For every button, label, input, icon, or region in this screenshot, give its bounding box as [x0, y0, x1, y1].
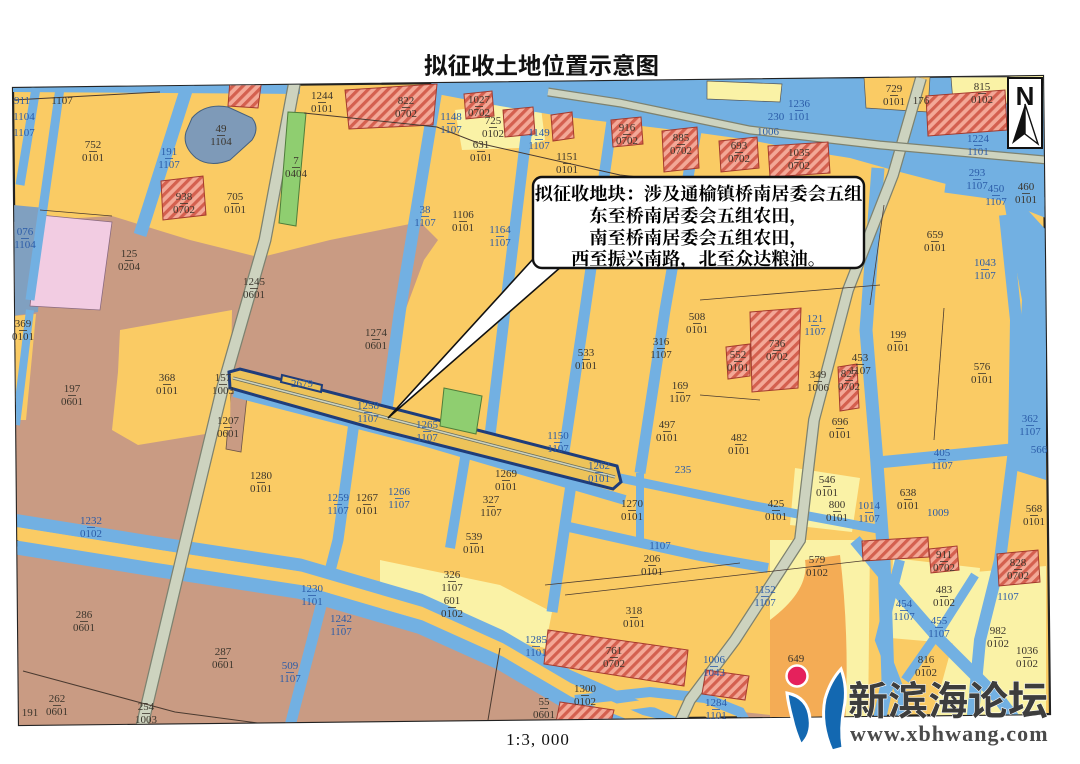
svg-text:1107: 1107: [849, 365, 871, 377]
svg-text:199: 199: [890, 329, 907, 341]
svg-text:1107: 1107: [547, 443, 569, 455]
svg-text:729: 729: [886, 83, 903, 95]
svg-text:0101: 0101: [728, 445, 750, 457]
svg-text:0601: 0601: [61, 396, 83, 408]
svg-text:1150: 1150: [547, 430, 569, 442]
svg-text:455: 455: [931, 615, 948, 627]
svg-text:176: 176: [913, 95, 930, 107]
svg-text:0702: 0702: [788, 160, 810, 172]
svg-text:1106: 1106: [452, 209, 474, 221]
svg-text:0102: 0102: [971, 94, 993, 106]
svg-text:0101: 0101: [829, 429, 851, 441]
svg-text:125: 125: [121, 248, 138, 260]
svg-text:1107: 1107: [440, 124, 462, 136]
svg-text:761: 761: [606, 645, 623, 657]
svg-text:0101: 0101: [495, 481, 517, 493]
svg-text:1107: 1107: [416, 432, 438, 444]
svg-text:601: 601: [444, 595, 461, 607]
svg-text:0702: 0702: [728, 153, 750, 165]
svg-text:0101: 0101: [452, 222, 474, 234]
svg-text:287: 287: [215, 646, 232, 658]
svg-text:631: 631: [473, 139, 490, 151]
svg-text:1107: 1107: [414, 217, 436, 229]
svg-text:0101: 0101: [463, 544, 485, 556]
svg-text:1036: 1036: [1016, 645, 1039, 657]
svg-text:1262: 1262: [588, 460, 610, 472]
svg-text:49: 49: [216, 123, 228, 135]
svg-text:1266: 1266: [388, 486, 411, 498]
svg-text:0101: 0101: [621, 511, 643, 523]
svg-text:483: 483: [936, 584, 953, 596]
svg-text:0601: 0601: [217, 428, 239, 440]
svg-text:7: 7: [293, 155, 299, 167]
svg-text:579: 579: [809, 554, 826, 566]
svg-text:1265: 1265: [416, 419, 439, 431]
svg-text:0101: 0101: [727, 362, 749, 374]
svg-text:38: 38: [420, 204, 432, 216]
svg-text:1107: 1107: [51, 95, 73, 107]
svg-text:362: 362: [1022, 413, 1039, 425]
svg-text:885: 885: [673, 132, 690, 144]
svg-text:1107: 1107: [669, 393, 691, 405]
svg-text:1107: 1107: [279, 673, 301, 685]
svg-text:0101: 0101: [156, 385, 178, 397]
svg-text:1107: 1107: [441, 582, 463, 594]
svg-text:1270: 1270: [621, 498, 644, 510]
svg-text:0101: 0101: [656, 432, 678, 444]
svg-text:1107: 1107: [158, 159, 180, 171]
svg-text:1107: 1107: [997, 591, 1019, 603]
svg-text:235: 235: [675, 464, 692, 476]
svg-text:316: 316: [653, 336, 670, 348]
svg-text:425: 425: [768, 498, 785, 510]
svg-text:1259: 1259: [327, 492, 350, 504]
svg-text:0101: 0101: [641, 566, 663, 578]
svg-text:736: 736: [769, 338, 786, 350]
svg-text:1267: 1267: [356, 492, 379, 504]
svg-text:1107: 1107: [804, 326, 826, 338]
svg-text:0101: 0101: [1023, 516, 1045, 528]
svg-text:0101: 0101: [623, 618, 645, 630]
svg-text:916: 916: [619, 122, 636, 134]
svg-text:911: 911: [14, 95, 30, 107]
svg-text:169: 169: [672, 380, 689, 392]
svg-text:1:3, 000: 1:3, 000: [506, 730, 570, 749]
svg-text:1101: 1101: [301, 596, 323, 608]
svg-text:1164: 1164: [489, 224, 511, 236]
svg-text:1107: 1107: [330, 626, 352, 638]
svg-text:1014: 1014: [858, 500, 881, 512]
svg-text:1006: 1006: [757, 126, 780, 138]
svg-text:0102: 0102: [574, 696, 596, 708]
svg-text:0101: 0101: [686, 324, 708, 336]
svg-text:0702: 0702: [1007, 570, 1029, 582]
svg-text:982: 982: [990, 625, 1007, 637]
svg-text:368: 368: [159, 372, 176, 384]
svg-text:1280: 1280: [250, 470, 273, 482]
svg-text:815: 815: [974, 81, 991, 93]
svg-text:1230: 1230: [301, 583, 324, 595]
svg-text:1258: 1258: [357, 400, 380, 412]
svg-text:0102: 0102: [441, 608, 463, 620]
svg-text:0702: 0702: [933, 562, 955, 574]
svg-text:568: 568: [1026, 503, 1043, 515]
svg-text:0101: 0101: [816, 487, 838, 499]
svg-text:293: 293: [969, 167, 986, 179]
svg-text:828: 828: [1010, 557, 1027, 569]
svg-text:254: 254: [138, 701, 155, 713]
svg-text:0702: 0702: [603, 658, 625, 670]
svg-text:725: 725: [485, 115, 502, 127]
svg-text:705: 705: [227, 191, 244, 203]
svg-text:1107: 1107: [489, 237, 511, 249]
svg-text:0404: 0404: [285, 168, 308, 180]
svg-text:1043: 1043: [703, 667, 726, 679]
svg-text:1043: 1043: [974, 257, 997, 269]
svg-text:0601: 0601: [212, 659, 234, 671]
svg-text:1107: 1107: [13, 127, 35, 139]
svg-text:1107: 1107: [357, 413, 379, 425]
svg-text:497: 497: [659, 419, 676, 431]
svg-text:0101: 0101: [765, 511, 787, 523]
svg-text:482: 482: [731, 432, 748, 444]
svg-text:539: 539: [466, 531, 483, 543]
svg-text:1104: 1104: [13, 111, 35, 123]
svg-text:0102: 0102: [1016, 658, 1038, 670]
svg-text:1006: 1006: [703, 654, 726, 666]
svg-text:816: 816: [918, 654, 935, 666]
svg-text:0101: 0101: [588, 473, 610, 485]
svg-text:1284: 1284: [705, 697, 728, 709]
svg-text:546: 546: [819, 474, 836, 486]
svg-text:157: 157: [215, 372, 232, 384]
svg-text:0702: 0702: [670, 145, 692, 157]
svg-text:1232: 1232: [80, 515, 102, 527]
svg-text:0101: 0101: [575, 360, 597, 372]
svg-text:1207: 1207: [217, 415, 240, 427]
svg-text:0601: 0601: [46, 706, 68, 718]
svg-text:0101: 0101: [12, 331, 34, 343]
svg-text:0702: 0702: [395, 108, 417, 120]
svg-text:0101: 0101: [826, 512, 848, 524]
svg-text:1152: 1152: [754, 584, 776, 596]
svg-text:405: 405: [934, 447, 951, 459]
svg-text:1269: 1269: [495, 468, 518, 480]
svg-text:0601: 0601: [533, 709, 555, 721]
svg-text:0101: 0101: [82, 152, 104, 164]
svg-text:0204: 0204: [118, 261, 141, 273]
svg-text:1300: 1300: [574, 683, 597, 695]
svg-text:191: 191: [161, 146, 178, 158]
svg-text:349: 349: [810, 369, 827, 381]
svg-text:454: 454: [896, 598, 913, 610]
svg-text:0102: 0102: [915, 667, 937, 679]
svg-text:1242: 1242: [330, 613, 352, 625]
svg-text:649: 649: [788, 653, 805, 665]
svg-text:1107: 1107: [928, 628, 950, 640]
svg-text:800: 800: [829, 499, 846, 511]
svg-text:638: 638: [900, 487, 917, 499]
svg-text:326: 326: [444, 569, 461, 581]
svg-text:0101: 0101: [897, 500, 919, 512]
svg-text:1107: 1107: [754, 597, 776, 609]
svg-text:1107: 1107: [528, 140, 550, 152]
svg-text:318: 318: [626, 605, 643, 617]
svg-text:752: 752: [85, 139, 102, 151]
svg-text:0601: 0601: [73, 622, 95, 634]
svg-text:576: 576: [974, 361, 991, 373]
svg-text:0702: 0702: [766, 351, 788, 363]
svg-text:1107: 1107: [1019, 426, 1041, 438]
svg-text:0601: 0601: [243, 289, 265, 301]
svg-text:1149: 1149: [528, 127, 550, 139]
svg-text:55: 55: [539, 696, 551, 708]
svg-text:0101: 0101: [556, 164, 578, 176]
svg-text:206: 206: [644, 553, 661, 565]
svg-text:121: 121: [807, 313, 824, 325]
svg-text:1245: 1245: [243, 276, 266, 288]
svg-text:0101: 0101: [883, 96, 905, 108]
svg-text:1101: 1101: [967, 146, 989, 158]
svg-text:1107: 1107: [966, 180, 988, 192]
svg-text:0102: 0102: [80, 528, 102, 540]
svg-text:1101: 1101: [788, 111, 810, 123]
svg-text:0101: 0101: [224, 204, 246, 216]
svg-text:369: 369: [15, 318, 32, 330]
svg-text:1107: 1107: [858, 513, 880, 525]
svg-text:508: 508: [689, 311, 706, 323]
svg-text:822: 822: [398, 95, 415, 107]
svg-text:0101: 0101: [470, 152, 492, 164]
svg-text:1107: 1107: [985, 196, 1007, 208]
svg-text:286: 286: [76, 609, 93, 621]
svg-text:696: 696: [832, 416, 849, 428]
svg-text:0702: 0702: [173, 204, 195, 216]
svg-text:1285: 1285: [525, 634, 548, 646]
svg-text:327: 327: [483, 494, 500, 506]
svg-text:1107: 1107: [931, 460, 953, 472]
svg-text:2679: 2679: [291, 378, 314, 390]
svg-text:1148: 1148: [440, 111, 462, 123]
svg-text:1236: 1236: [788, 98, 811, 110]
svg-text:1027: 1027: [468, 94, 491, 106]
svg-text:0102: 0102: [933, 597, 955, 609]
svg-text:1107: 1107: [388, 499, 410, 511]
svg-text:566: 566: [1031, 444, 1048, 456]
svg-text:1003: 1003: [212, 385, 235, 397]
svg-text:0101: 0101: [356, 505, 378, 517]
svg-text:1151: 1151: [556, 151, 578, 163]
svg-text:0101: 0101: [1015, 194, 1037, 206]
svg-text:0101: 0101: [887, 342, 909, 354]
svg-text:460: 460: [1018, 181, 1035, 193]
svg-text:0702: 0702: [838, 381, 860, 393]
svg-text:0101: 0101: [971, 374, 993, 386]
svg-text:1035: 1035: [788, 147, 811, 159]
svg-text:1224: 1224: [967, 133, 990, 145]
svg-text:1101: 1101: [705, 710, 727, 722]
svg-text:1107: 1107: [327, 505, 349, 517]
svg-text:0601: 0601: [365, 340, 387, 352]
svg-text:1101: 1101: [525, 647, 547, 659]
svg-text:693: 693: [731, 140, 748, 152]
svg-text:www.xbhwang.com: www.xbhwang.com: [850, 721, 1049, 746]
svg-text:1006: 1006: [807, 382, 830, 394]
svg-text:659: 659: [927, 229, 944, 241]
svg-text:552: 552: [730, 349, 747, 361]
svg-text:1244: 1244: [311, 90, 334, 102]
svg-text:230: 230: [768, 111, 785, 123]
svg-text:197: 197: [64, 383, 81, 395]
svg-text:0102: 0102: [987, 638, 1009, 650]
svg-text:453: 453: [852, 352, 869, 364]
svg-text:509: 509: [282, 660, 299, 672]
svg-text:1107: 1107: [650, 349, 672, 361]
svg-text:911: 911: [936, 549, 952, 561]
svg-text:0101: 0101: [924, 242, 946, 254]
svg-text:262: 262: [49, 693, 66, 705]
svg-text:1274: 1274: [365, 327, 388, 339]
svg-text:1104: 1104: [210, 136, 232, 148]
svg-text:1107: 1107: [893, 611, 915, 623]
svg-text:450: 450: [988, 183, 1005, 195]
svg-text:0102: 0102: [806, 567, 828, 579]
svg-text:1107: 1107: [649, 540, 671, 552]
svg-text:938: 938: [176, 191, 193, 203]
svg-text:1003: 1003: [135, 714, 158, 726]
svg-text:533: 533: [578, 347, 595, 359]
svg-text:1104: 1104: [14, 239, 36, 251]
svg-text:1107: 1107: [974, 270, 996, 282]
svg-text:076: 076: [17, 226, 34, 238]
svg-text:0101: 0101: [311, 103, 333, 115]
svg-text:0101: 0101: [250, 483, 272, 495]
svg-text:191: 191: [22, 707, 39, 719]
svg-text:1009: 1009: [927, 507, 950, 519]
svg-text:1107: 1107: [480, 507, 502, 519]
svg-text:0702: 0702: [616, 135, 638, 147]
